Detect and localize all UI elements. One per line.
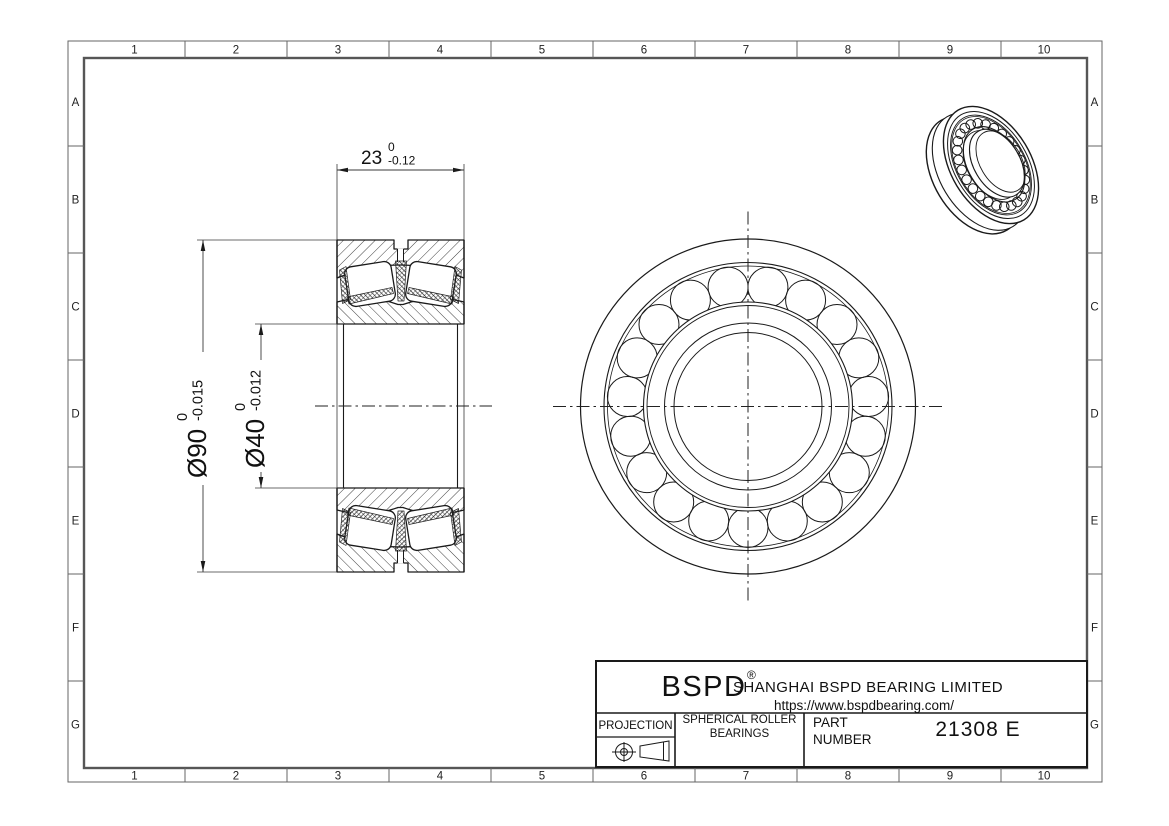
grid-col-label: 10 [1038,771,1051,783]
grid-col-label: 8 [845,45,851,57]
company-name: SHANGHAI BSPD BEARING LIMITED [733,679,1003,696]
drawing-sheet: 12345678910 12345678910 ABCDEFG ABCDEFG [0,0,1169,826]
grid-row-label: B [72,195,80,207]
bore-tol-lower: -0.012 [249,370,265,411]
grid-row-label: A [1091,97,1099,109]
grid-col-label: 4 [437,771,444,783]
grid-col-label: 2 [233,45,239,57]
grid-row-label: C [1090,302,1098,314]
width-value: 23 [361,148,382,169]
grid-row-labels-left: ABCDEFG [71,97,80,732]
projection-label: PROJECTION [598,720,672,732]
grid-column-labels-bottom: 12345678910 [131,771,1050,783]
part-number-value: 21308 E [935,718,1020,741]
grid-row-label: F [1091,623,1098,635]
part-label-line2: NUMBER [813,732,872,747]
grid-col-label: 3 [335,45,341,57]
od-value: Ø90 [182,429,212,478]
front-roller [849,377,889,417]
front-roller [748,267,788,307]
title-block: BSPD ® SHANGHAI BSPD BEARING LIMITED htt… [596,661,1087,767]
grid-col-label: 7 [743,45,749,57]
grid-col-label: 4 [437,45,444,57]
part-label-line1: PART [813,715,848,730]
product-type-line2: BEARINGS [710,728,770,740]
iso-view [907,90,1059,251]
grid-col-label: 9 [947,771,953,783]
grid-row-label: B [1091,195,1099,207]
od-tol-upper: 0 [175,413,191,421]
grid-col-label: 5 [539,45,545,57]
grid-row-label: D [1090,409,1098,421]
grid-row-label: E [1091,516,1099,528]
grid-col-label: 5 [539,771,545,783]
grid-col-label: 1 [131,771,137,783]
grid-row-label: C [71,302,79,314]
product-type-line1: SPHERICAL ROLLER [683,714,797,726]
grid-col-label: 8 [845,771,851,783]
front-view [553,212,943,602]
company-website: https://www.bspdbearing.com/ [774,698,954,713]
grid-col-label: 10 [1038,45,1051,57]
grid-row-labels-right: ABCDEFG [1090,97,1099,732]
grid-column-labels-top: 12345678910 [131,45,1050,57]
grid-col-label: 2 [233,771,239,783]
grid-col-label: 1 [131,45,137,57]
od-tol-lower: -0.015 [191,380,207,421]
grid-col-label: 9 [947,45,953,57]
width-tol-lower: -0.12 [388,154,416,168]
grid-col-label: 6 [641,771,647,783]
grid-row-label: E [72,516,80,528]
width-tol-upper: 0 [388,140,395,154]
front-roller [607,377,647,417]
section-view [315,164,492,572]
grid-row-label: A [72,97,80,109]
grid-col-label: 3 [335,771,341,783]
grid-row-label: G [1090,720,1099,732]
grid-col-label: 6 [641,45,647,57]
bore-value: Ø40 [240,419,270,468]
grid-col-label: 7 [743,771,749,783]
front-roller [708,267,748,307]
bore-tol-upper: 0 [233,403,249,411]
grid-row-label: F [72,623,79,635]
dimension-width: 23 0 -0.12 [337,140,464,172]
grid-row-label: D [71,409,79,421]
section-top-half [337,240,464,324]
grid-row-label: G [71,720,80,732]
